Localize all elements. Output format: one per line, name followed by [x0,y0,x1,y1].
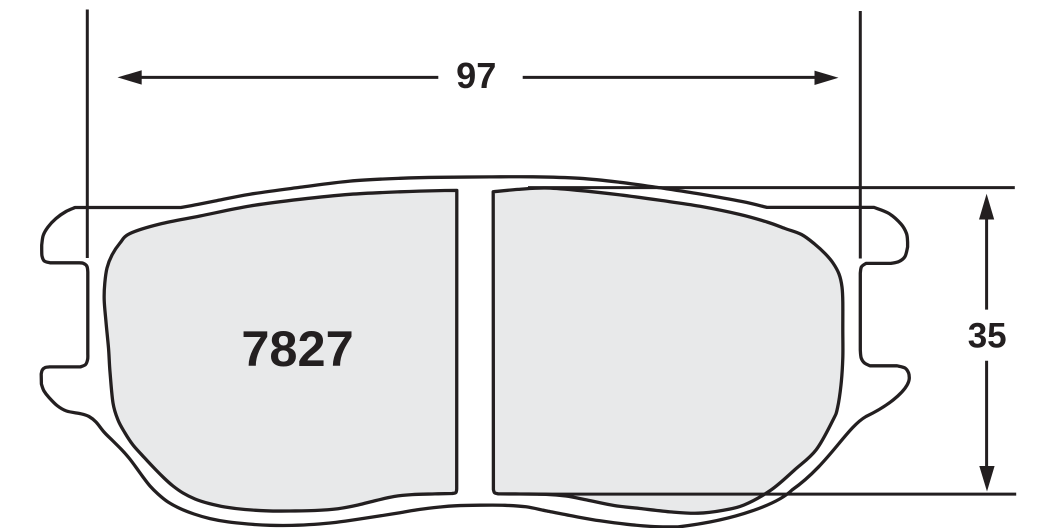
svg-text:7827: 7827 [241,320,353,377]
svg-text:97: 97 [456,55,496,96]
svg-text:35: 35 [968,316,1007,355]
